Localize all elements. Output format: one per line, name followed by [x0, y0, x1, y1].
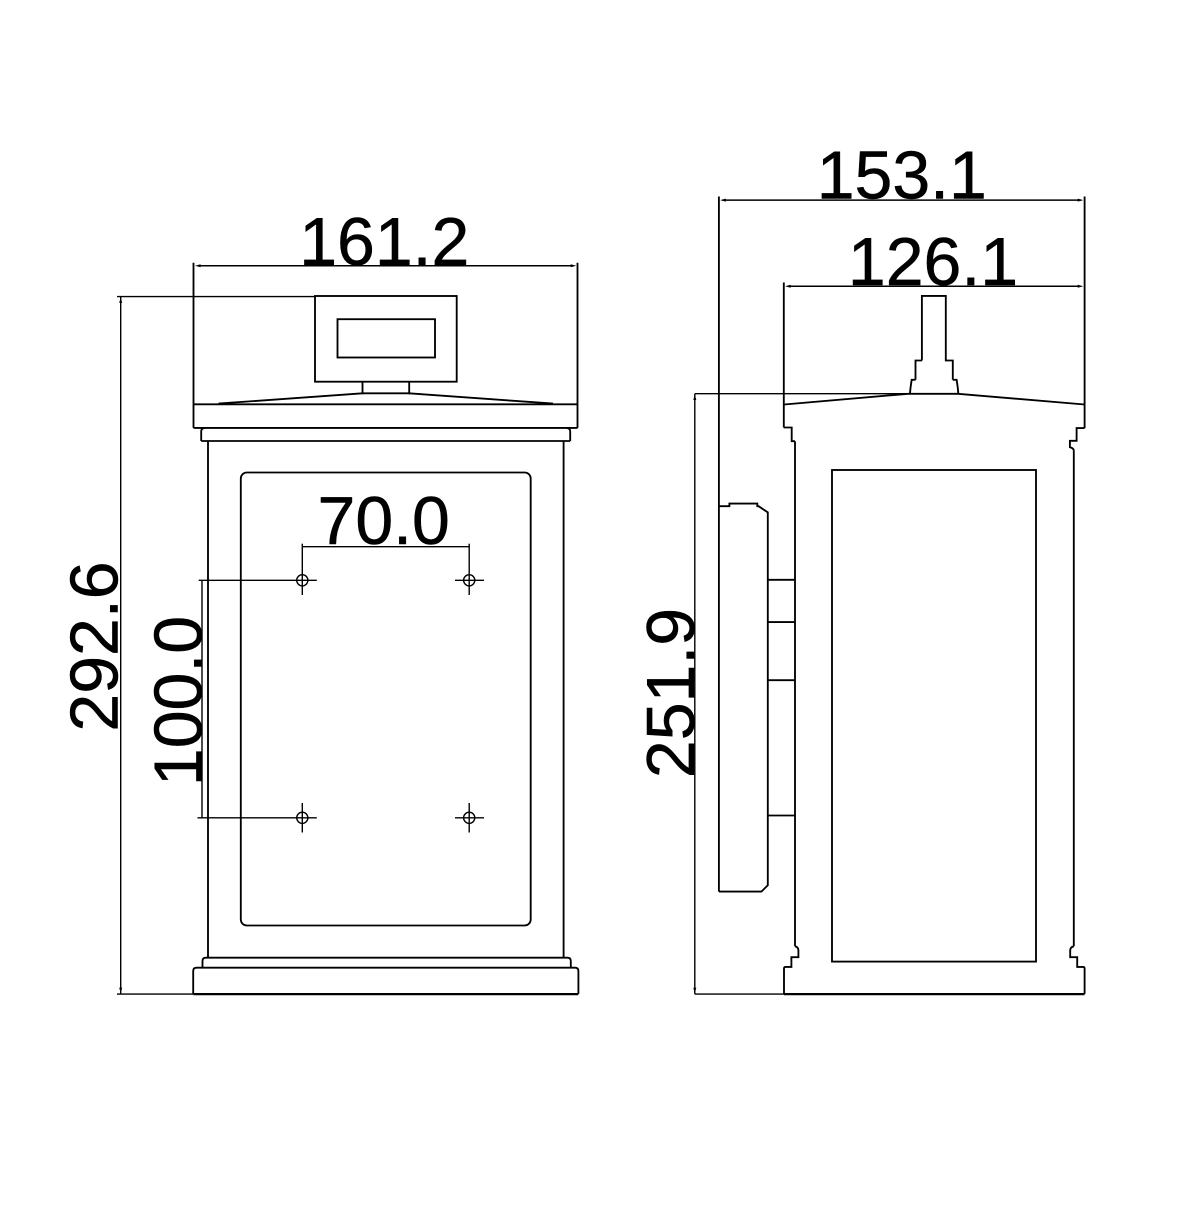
svg-text:251.9: 251.9	[633, 608, 709, 778]
svg-text:126.1: 126.1	[848, 224, 1018, 300]
svg-text:153.1: 153.1	[817, 138, 987, 214]
svg-text:70.0: 70.0	[318, 483, 450, 559]
svg-text:161.2: 161.2	[299, 204, 469, 280]
svg-text:292.6: 292.6	[57, 561, 133, 731]
svg-text:100.0: 100.0	[141, 616, 217, 786]
